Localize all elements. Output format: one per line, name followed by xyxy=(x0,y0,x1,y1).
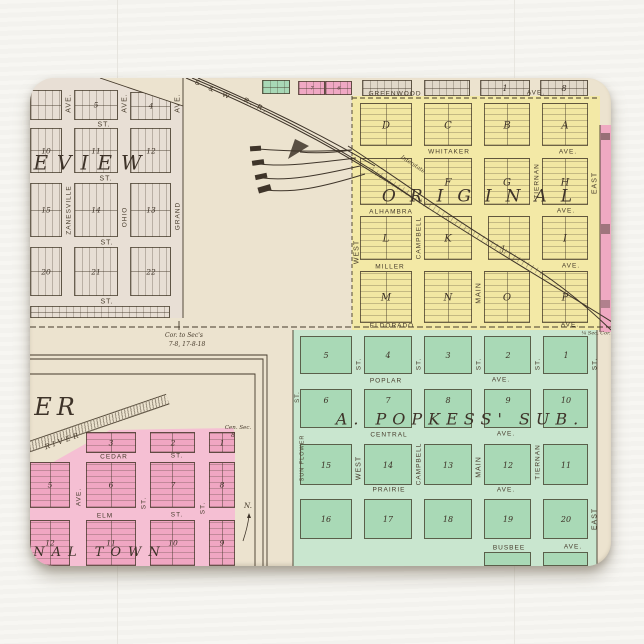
mousepad: 541011121514132021221876DCBAFGHLKIMNOP54… xyxy=(30,78,611,566)
miller-avenue: MILLER xyxy=(375,262,404,270)
sunflower-street: SUN FLOWER xyxy=(299,435,305,482)
lakeview-ave-1: AVE. xyxy=(64,93,72,112)
poplar-ave-suffix: AVE. xyxy=(492,375,510,383)
mousepad-product-photo: { "scene":{ "bg":"#f5f4f0", "pad":{"x":3… xyxy=(0,0,644,644)
central-ave-suffix: AVE. xyxy=(497,429,515,437)
alhambra-ave-suffix: AVE. xyxy=(557,206,575,214)
prairie-avenue: PRAIRIE xyxy=(372,485,405,493)
cedar-st-suffix: ST. xyxy=(171,451,183,459)
eldorado-avenue: ELDORADO xyxy=(370,321,414,329)
campbell-street: CAMPBELL xyxy=(414,217,422,260)
origtown-st-2: ST. xyxy=(198,502,206,514)
quartersec-note: ¼ Sec. Cor. xyxy=(581,330,610,336)
origtown-title: NAL TOWN xyxy=(33,545,167,560)
popkess-west: WEST xyxy=(354,456,362,480)
whitaker-avenue: WHITAKER xyxy=(428,147,470,155)
lakeview-st-3: ST. xyxy=(100,238,113,246)
lakeview-st-1: ST. xyxy=(97,120,110,128)
corner-note-2: 7-8, 17-8-18 xyxy=(169,341,206,348)
lakeview-ave-2: AVE. xyxy=(120,93,128,112)
eldorado-ave-suffix: AVE. xyxy=(561,320,579,328)
popkess-title: A. POPKESS' SUB. xyxy=(336,410,584,429)
lakeview-st-2: ST. xyxy=(99,174,112,182)
north-label: N. xyxy=(244,502,252,510)
busbee-avenue: BUSBEE xyxy=(493,543,525,551)
elm-street: ELM xyxy=(97,511,113,519)
lakeview-st-4: ST. xyxy=(100,297,113,305)
zanesville-street: ZANESVILLE xyxy=(64,185,72,234)
origtown-ave: AVE. xyxy=(74,488,82,506)
censec-8: 8 xyxy=(231,432,235,439)
popkess-st-4: ST. xyxy=(533,358,541,370)
greenwood-ave-suffix: AVE. xyxy=(527,88,545,96)
railroad-interstate: Interstate xyxy=(400,154,427,174)
popkess-campbell: CAMPBELL xyxy=(414,443,422,486)
origtown-st-1: ST. xyxy=(139,497,147,509)
east-street: EAST xyxy=(590,172,598,194)
alhambra-avenue: ALHAMBRA xyxy=(369,207,413,215)
original-title: ORIGINAL xyxy=(382,186,586,206)
poplar-avenue: POPLAR xyxy=(370,376,402,384)
whitaker-ave-suffix: AVE. xyxy=(559,147,577,155)
elm-st-suffix: ST. xyxy=(171,510,183,518)
popkess-st-5: ST. xyxy=(590,358,598,370)
miller-ave-suffix: AVE. xyxy=(562,261,580,269)
greenwood-avenue: GREENWOOD xyxy=(368,89,421,97)
west-street: WEST xyxy=(352,240,360,264)
lakeview-ave-3: AVE. xyxy=(173,93,181,112)
busbee-ave-suffix: AVE. xyxy=(564,542,582,550)
railroad-rr: R. R. xyxy=(243,96,270,115)
corner-note-1: Cor. to Sec's xyxy=(165,332,203,339)
grand-street: GRAND xyxy=(173,202,181,230)
lakeview-title: EVIEW xyxy=(33,152,150,175)
popkess-st-2: ST. xyxy=(414,358,422,370)
popkess-st-left: ST. xyxy=(294,391,301,403)
map-labels-layer: AVE.AVE.AVE.ST.ST.ST.ST.ZANESVILLEOHIOGR… xyxy=(30,78,611,566)
prairie-ave-suffix: AVE. xyxy=(497,485,515,493)
cedar-street: CEDAR xyxy=(100,452,128,460)
block-j-label: J xyxy=(502,245,505,253)
censec-note: Cen. Sec. xyxy=(225,424,251,431)
river-label: RIVER xyxy=(44,431,83,452)
popkess-st-3: ST. xyxy=(474,358,482,370)
popkess-main: MAIN xyxy=(474,456,482,478)
main-street: MAIN xyxy=(474,282,482,304)
ohio-street: OHIO xyxy=(120,207,128,228)
popkess-tiernan: TIERNAN xyxy=(533,444,541,480)
inset-title-partial: ER xyxy=(34,393,80,421)
popkess-st-1: ST. xyxy=(354,358,362,370)
popkess-east: EAST xyxy=(590,508,598,530)
railroad-name: S & W xyxy=(193,78,234,102)
central-avenue: CENTRAL xyxy=(370,430,407,438)
